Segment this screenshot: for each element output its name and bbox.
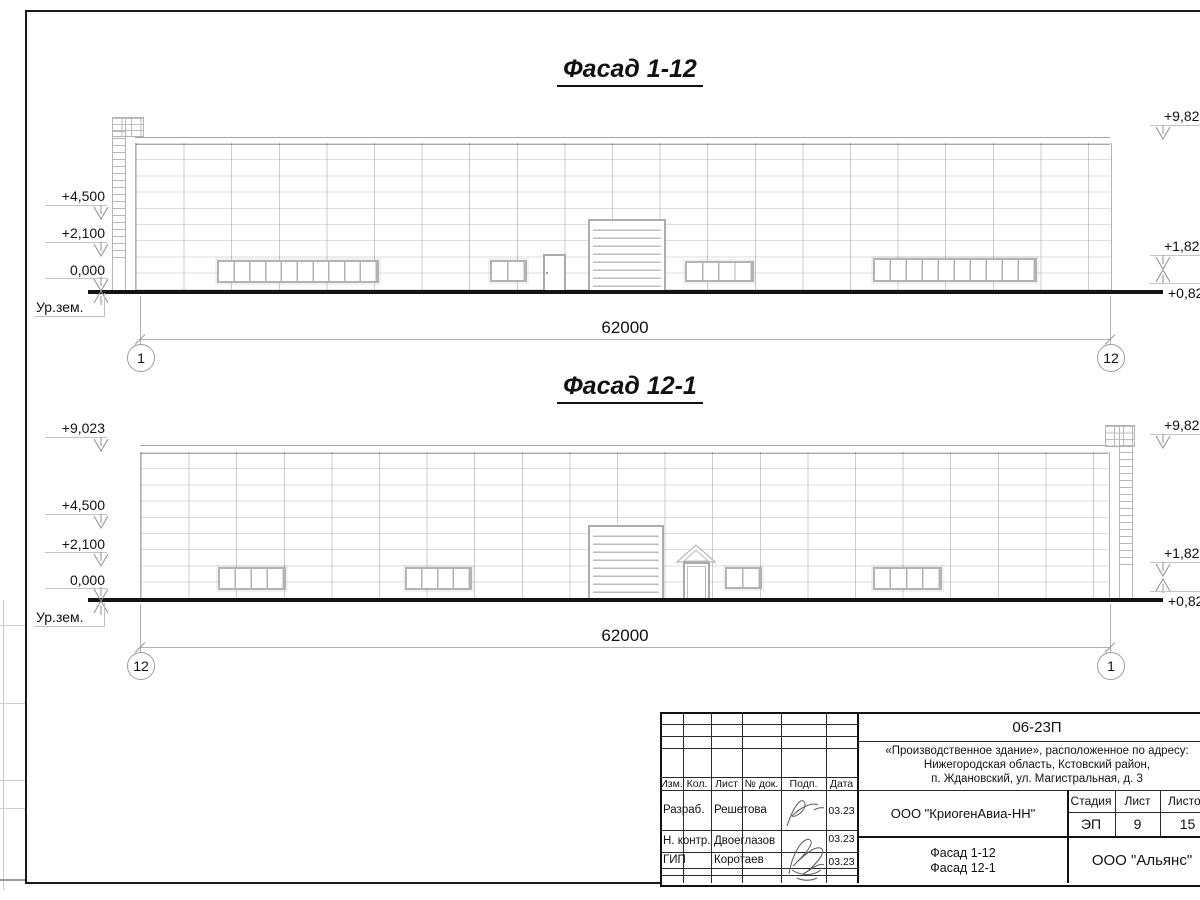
gate <box>588 525 664 602</box>
stage-value: ЭП <box>1067 812 1115 836</box>
axis-marker: 12 <box>127 652 155 680</box>
elevation-mark-label: +2,100 <box>30 225 105 241</box>
project-description-line: Нижегородская область, Кстовский район, <box>860 758 1200 772</box>
elevation-arrow-icon <box>1154 125 1172 140</box>
contractor-name: ООО "Альянс" <box>1069 838 1200 883</box>
elevation-mark-label: 0,000 <box>30 572 105 588</box>
staff-date: 03.23 <box>826 832 857 845</box>
axis-marker: 1 <box>1097 652 1125 680</box>
project-description-line: «Производственное здание», расположенное… <box>860 744 1200 758</box>
doc-number: 06-23П <box>859 714 1200 741</box>
drawing-title: Фасад 1-12 Фасад 12-1 <box>859 838 1067 883</box>
adjacent-sheet-line <box>0 780 25 781</box>
door <box>683 562 710 602</box>
elevation-mark-label: +4,500 <box>30 497 105 513</box>
dimension-line <box>140 339 1110 340</box>
axis-number: 12 <box>1103 350 1119 366</box>
ground-level-label: Ур.зем. <box>34 293 105 317</box>
elevation-arrow-icon <box>1154 562 1172 577</box>
adjacent-sheet-line <box>0 879 25 881</box>
axis-marker: 12 <box>1097 344 1125 372</box>
facade-2-ladder-top <box>1105 425 1135 447</box>
signature <box>783 792 825 830</box>
gate-slats <box>593 223 661 289</box>
ground-level-text: Ур.зем. <box>36 299 84 315</box>
door-handle <box>546 272 548 274</box>
titleblock-col-header: Изм. <box>660 777 683 790</box>
titleblock-grid-line <box>660 852 857 853</box>
facade-2-title: Фасад 12-1 <box>480 372 780 401</box>
facade-2-ground-line <box>88 598 1163 602</box>
adjacent-sheet-line <box>0 703 25 704</box>
staff-name: Двоеглазов <box>714 835 775 847</box>
facade-1-title: Фасад 1-12 <box>480 55 780 84</box>
titleblock-col-header: Кол. <box>683 777 711 790</box>
elevation-mark-label: +2,100 <box>30 536 105 552</box>
elevation-mark-label: +1,82 <box>1164 545 1199 561</box>
titleblock-grid-line <box>660 868 857 869</box>
titleblock-grid-line <box>660 875 857 876</box>
sheet-value: 9 <box>1115 812 1160 836</box>
gate <box>588 219 666 293</box>
window <box>685 261 754 282</box>
titleblock-col-header: Дата <box>826 777 857 790</box>
sheets-value: 15 <box>1160 812 1200 836</box>
facade-1-title-text: Фасад 1-12 <box>557 55 703 87</box>
titleblock-grid-line <box>660 748 857 749</box>
window-strip <box>217 260 379 283</box>
window <box>405 567 472 590</box>
elevation-mark-shelf <box>1150 283 1200 284</box>
company-name: ООО "КриогенАвиа-НН" <box>859 790 1067 836</box>
project-description: «Производственное здание», расположенное… <box>860 744 1200 786</box>
window <box>725 567 762 589</box>
facade-1-ladder <box>112 117 126 290</box>
elevation-arrow-icon <box>92 514 110 529</box>
sheets-header: Листов <box>1160 790 1200 812</box>
elevation-mark-label: +0,82 <box>1168 593 1200 609</box>
elevation-arrow-icon <box>92 552 110 567</box>
elevation-arrow-icon <box>92 242 110 257</box>
elevation-arrow-icon <box>92 437 110 452</box>
gate-slats <box>593 529 659 598</box>
staff-date: 03.23 <box>826 804 857 817</box>
elevation-mark-label: 0,000 <box>30 262 105 278</box>
elevation-mark-label: +0,82 <box>1168 285 1200 301</box>
drawing-title-line: Фасад 1-12 <box>930 846 995 861</box>
door-leaf <box>687 566 706 600</box>
elevation-mark-shelf <box>1150 591 1200 592</box>
ground-level-text: Ур.зем. <box>36 609 84 625</box>
axis-marker: 1 <box>127 344 155 372</box>
staff-name: Решетова <box>714 804 767 816</box>
window <box>873 567 942 590</box>
drawing-sheet: Фасад 1-12 +4,500 +2,100 0,000 Ур.зем. +… <box>0 0 1200 900</box>
staff-role: Разраб. <box>663 804 704 816</box>
signature <box>783 828 825 882</box>
axis-number: 1 <box>137 350 145 366</box>
elevation-arrow-icon <box>1154 255 1172 270</box>
titleblock-grid-line <box>781 712 782 883</box>
titleblock-grid-line <box>660 724 857 725</box>
elevation-mark-label: +9,023 <box>30 420 105 436</box>
dimension-label: 62000 <box>525 318 725 338</box>
axis-number: 12 <box>133 658 149 674</box>
staff-date: 03.23 <box>826 855 857 868</box>
adjacent-sheet-line <box>0 808 25 809</box>
staff-name: Коротаев <box>714 854 764 866</box>
facade-2-ladder <box>1119 425 1133 598</box>
door-canopy <box>676 544 716 563</box>
facade-1-ground-line <box>88 290 1163 294</box>
elevation-mark-label: +1,82 <box>1164 238 1199 254</box>
door <box>543 254 566 293</box>
stage-header: Стадия <box>1067 790 1115 812</box>
elevation-mark-label: +9,82 <box>1164 108 1199 124</box>
titleblock-col-header: Подп. <box>781 777 826 790</box>
project-description-line: п. Ждановский, ул. Магистральная, д. 3 <box>860 772 1200 786</box>
window <box>218 567 286 590</box>
elevation-arrow-icon <box>92 205 110 220</box>
titleblock-grid-line <box>660 736 857 737</box>
axis-number: 1 <box>1107 658 1115 674</box>
facade-2-title-text: Фасад 12-1 <box>557 372 703 404</box>
dimension-label: 62000 <box>525 626 725 646</box>
window <box>490 260 527 282</box>
window-strip <box>873 258 1037 282</box>
titleblock-col-header: № док. <box>742 777 781 790</box>
titleblock-grid-line <box>859 741 1200 742</box>
ladder-rungs <box>1120 445 1132 565</box>
elevation-arrow-up-icon <box>1154 269 1172 284</box>
facade-1-ladder-top <box>112 117 144 137</box>
dimension-line <box>140 647 1110 648</box>
titleblock-grid-line <box>711 712 712 883</box>
elevation-arrow-icon <box>1154 434 1172 449</box>
elevation-mark-label: +4,500 <box>30 188 105 204</box>
ladder-rungs <box>113 117 125 263</box>
staff-role: ГИП <box>663 854 686 866</box>
adjacent-sheet-line <box>0 625 25 626</box>
ground-level-label: Ур.зем. <box>34 603 105 627</box>
drawing-title-line: Фасад 12-1 <box>930 861 995 876</box>
titleblock-grid-line <box>660 830 857 831</box>
titleblock-col-header: Лист <box>711 777 742 790</box>
elevation-mark-label: +9,82 <box>1164 417 1199 433</box>
sheet-header: Лист <box>1115 790 1160 812</box>
staff-role: Н. контр. <box>663 835 710 847</box>
adjacent-sheet-edge <box>3 600 4 890</box>
